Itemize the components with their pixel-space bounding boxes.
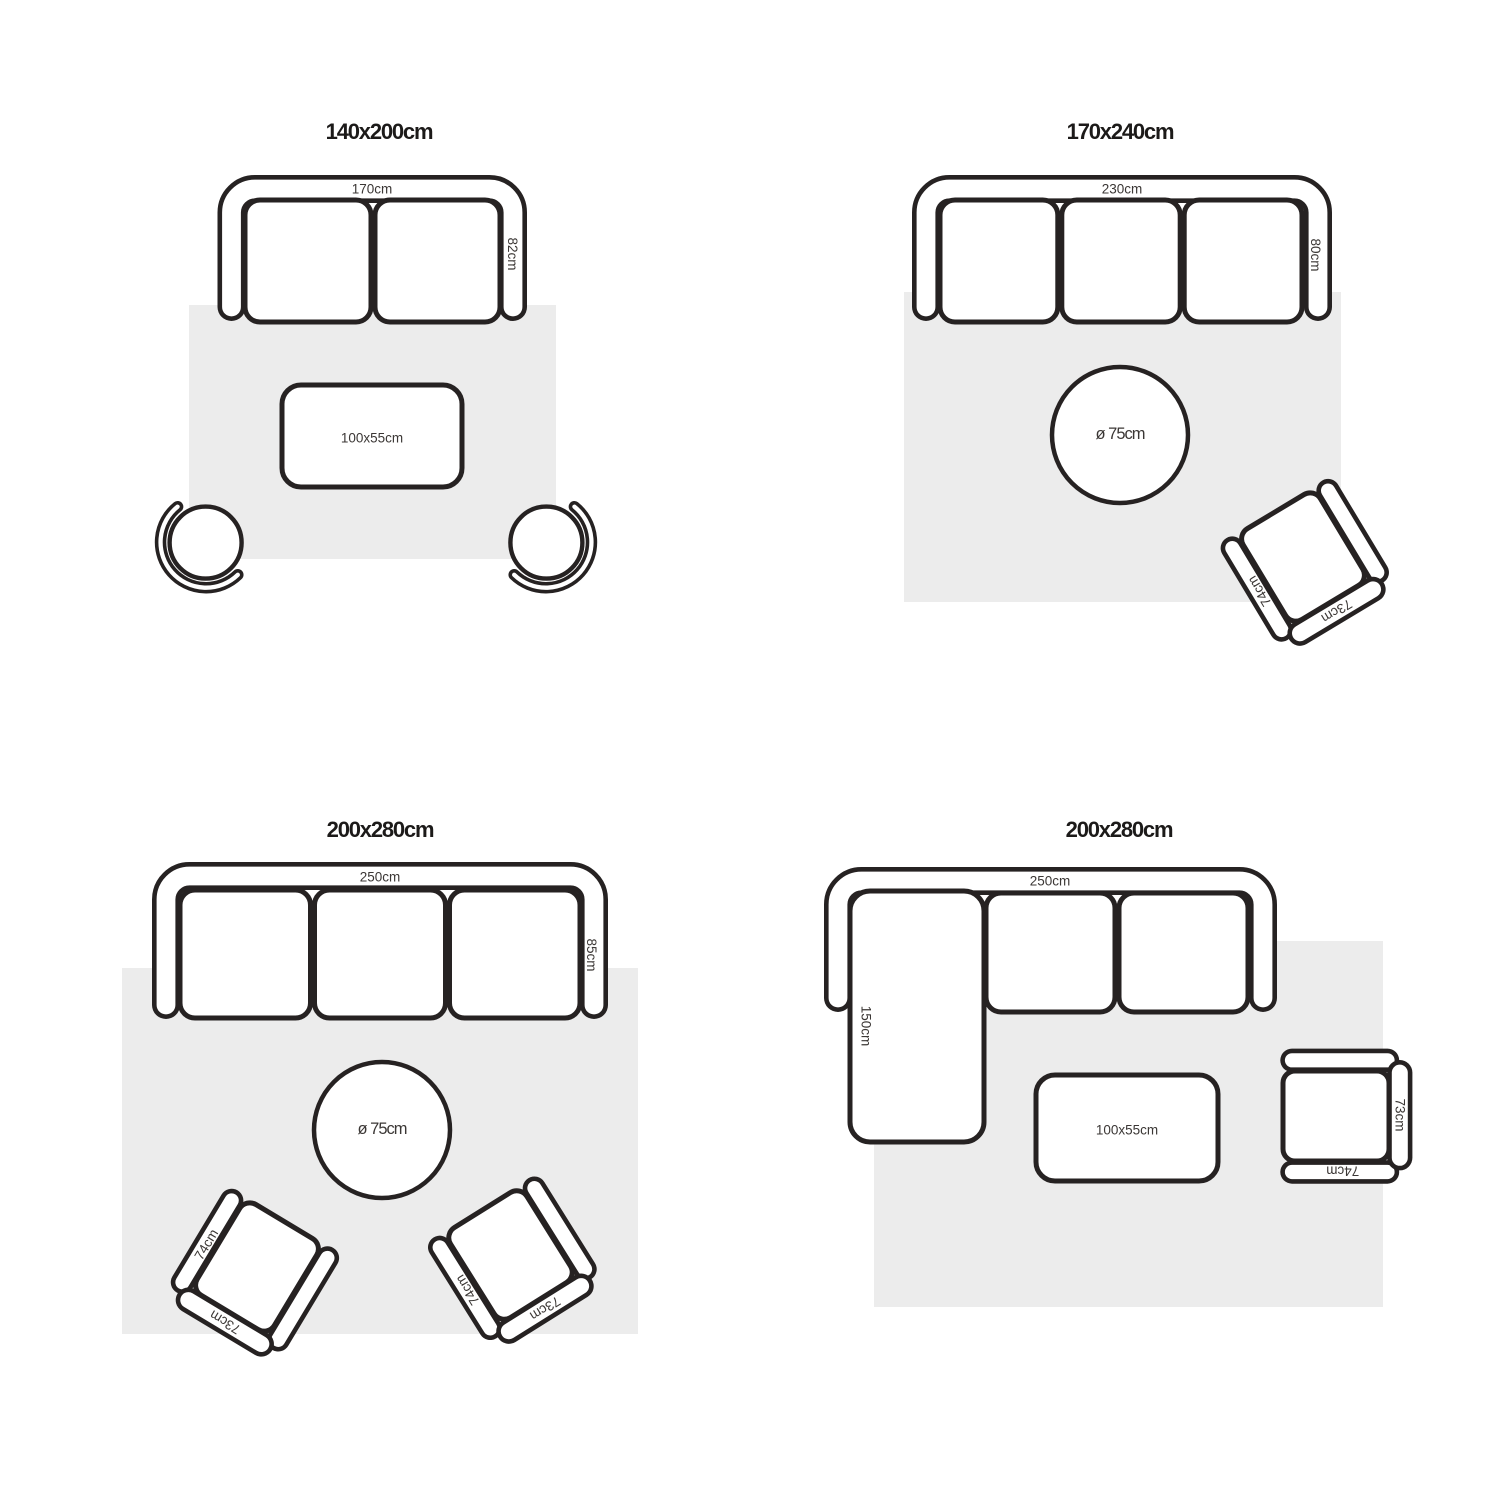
svg-text:74cm: 74cm: [1326, 1164, 1359, 1179]
svg-text:73cm: 73cm: [1392, 1098, 1407, 1131]
svg-text:80cm: 80cm: [1308, 238, 1323, 271]
svg-text:85cm: 85cm: [584, 938, 599, 971]
svg-text:200x280cm: 200x280cm: [327, 817, 434, 842]
svg-text:150cm: 150cm: [859, 1006, 874, 1047]
svg-text:250cm: 250cm: [360, 870, 401, 885]
svg-text:140x200cm: 140x200cm: [326, 119, 433, 144]
svg-text:ø 75cm: ø 75cm: [1095, 425, 1144, 443]
svg-text:ø 75cm: ø 75cm: [357, 1120, 406, 1138]
svg-text:100x55cm: 100x55cm: [341, 431, 403, 446]
svg-text:230cm: 230cm: [1102, 182, 1143, 197]
svg-text:250cm: 250cm: [1030, 874, 1071, 889]
svg-text:82cm: 82cm: [505, 237, 520, 270]
svg-text:200x280cm: 200x280cm: [1066, 817, 1173, 842]
svg-text:170x240cm: 170x240cm: [1067, 119, 1174, 144]
svg-text:170cm: 170cm: [352, 182, 393, 197]
svg-text:100x55cm: 100x55cm: [1096, 1123, 1158, 1138]
